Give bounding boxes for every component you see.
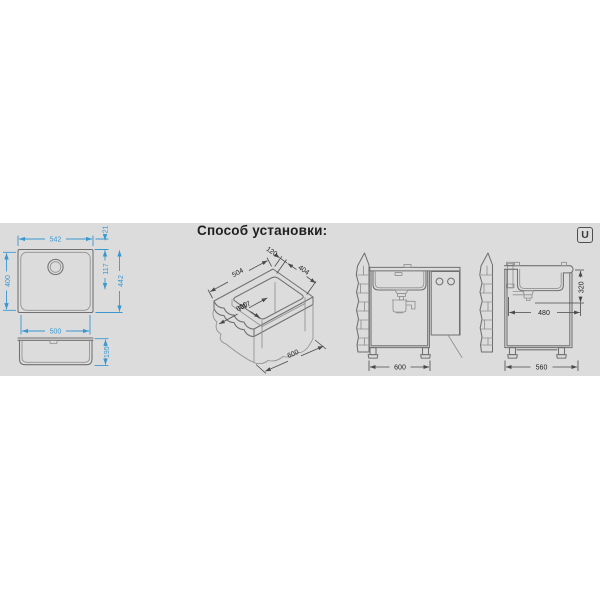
dim-cabinet-depth: 560 bbox=[536, 364, 548, 371]
dim-cutout-length: 504 bbox=[231, 267, 245, 279]
dim-counter-width: 600 bbox=[286, 349, 300, 360]
cabinet-leg bbox=[368, 348, 378, 359]
dim-back-offset: 120 bbox=[265, 246, 279, 258]
overflow-slot bbox=[395, 272, 402, 275]
cabinet-leg bbox=[421, 348, 431, 359]
dim-clearance: 480 bbox=[538, 310, 550, 317]
dim-overall-depth: 400 bbox=[5, 275, 12, 287]
front-install-diagram: 600 bbox=[356, 253, 462, 371]
dim-bowl-depth: 195 bbox=[104, 346, 111, 358]
countertop-side bbox=[505, 266, 574, 273]
technical-drawing: 542 21 117 442 400 500 bbox=[0, 0, 600, 600]
dim-bowl-width: 500 bbox=[50, 328, 62, 335]
sink-installation-sheet: Способ установки: U bbox=[0, 0, 600, 600]
bowl-outline bbox=[21, 252, 90, 310]
cabinet-leg bbox=[508, 348, 518, 359]
siphon bbox=[392, 290, 415, 313]
cutout-view-diagram: 504 120 404 R17 600 600 bbox=[208, 246, 326, 374]
sink-front-view bbox=[18, 338, 93, 365]
drain-circle-inner bbox=[50, 262, 61, 273]
dim-mount-depth: 320 bbox=[579, 281, 586, 293]
wall-section bbox=[356, 253, 369, 352]
dim-cabinet-width: 600 bbox=[394, 364, 406, 371]
dim-drain-offset: 117 bbox=[103, 263, 110, 274]
dim-rim-width: 21 bbox=[103, 226, 110, 234]
side-install-diagram: 320 480 560 bbox=[480, 253, 586, 371]
dim-depth-with-rim: 442 bbox=[118, 275, 125, 287]
panel-hole bbox=[448, 278, 455, 285]
wall-section bbox=[480, 253, 493, 352]
dim-overall-width: 542 bbox=[50, 236, 62, 243]
dim-cutout-width: 404 bbox=[297, 264, 311, 276]
side-panel bbox=[431, 272, 459, 336]
countertop-face bbox=[214, 269, 313, 329]
top-view-diagram: 542 21 117 442 400 500 bbox=[3, 226, 125, 366]
panel-hole bbox=[436, 278, 443, 285]
cabinet-leg bbox=[557, 348, 567, 359]
